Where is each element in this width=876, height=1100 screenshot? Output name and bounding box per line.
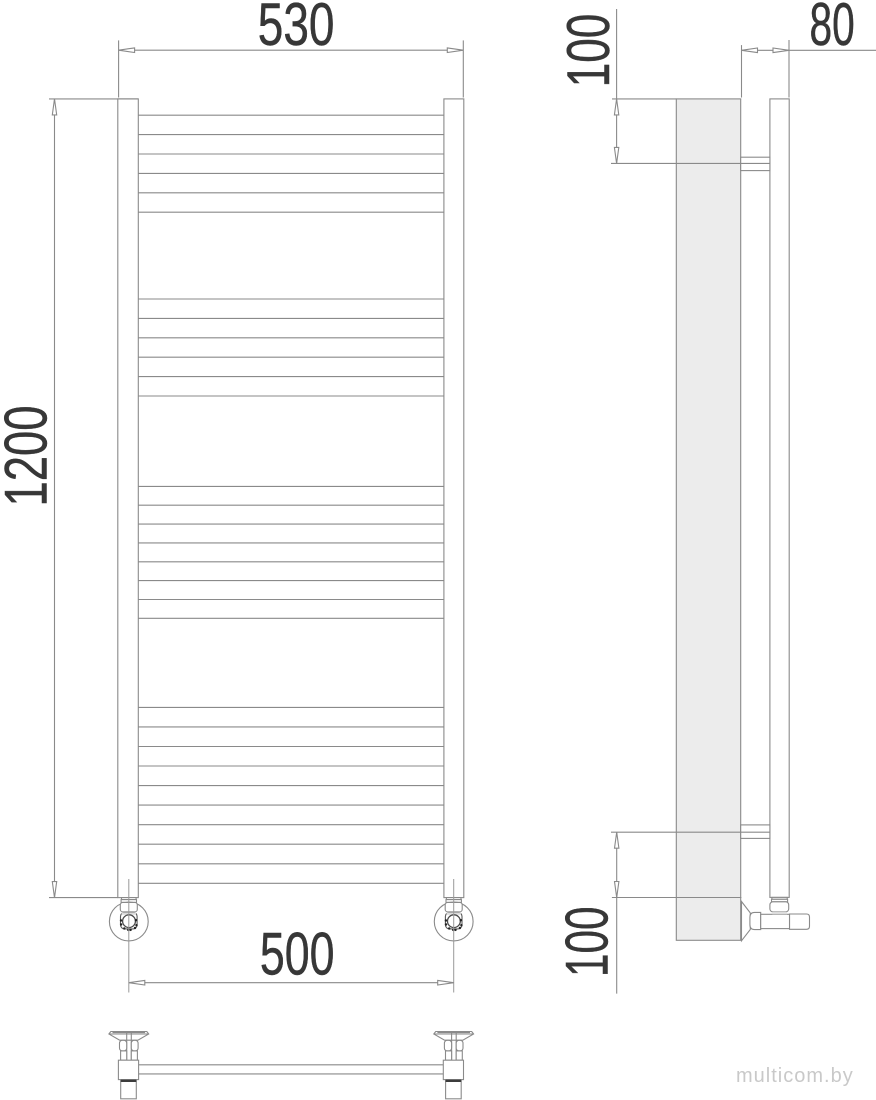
svg-text:500: 500 xyxy=(260,921,335,988)
svg-text:80: 80 xyxy=(810,0,855,58)
svg-text:multicom.by: multicom.by xyxy=(736,1065,854,1087)
svg-text:530: 530 xyxy=(258,0,335,58)
svg-text:100: 100 xyxy=(555,14,622,88)
svg-text:100: 100 xyxy=(553,907,620,978)
svg-text:1200: 1200 xyxy=(0,406,59,507)
